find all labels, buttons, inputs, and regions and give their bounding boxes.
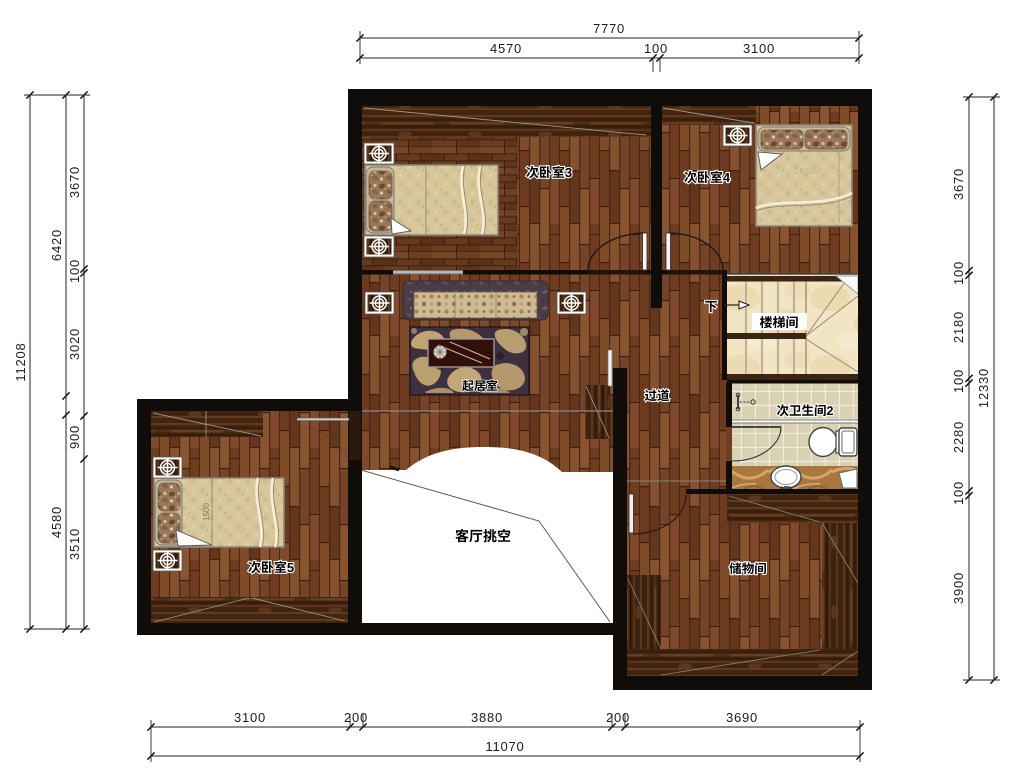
svg-text:3900: 3900 (951, 572, 966, 604)
svg-text:11208: 11208 (13, 342, 28, 381)
svg-text:200: 200 (344, 710, 368, 725)
svg-text:12330: 12330 (976, 368, 991, 408)
svg-text:900: 900 (67, 425, 82, 449)
svg-text:3880: 3880 (471, 710, 503, 725)
svg-text:100: 100 (644, 41, 668, 56)
svg-text:1500: 1500 (794, 166, 817, 176)
svg-text:2180: 2180 (951, 311, 966, 343)
svg-text:4570: 4570 (490, 41, 522, 56)
svg-text:4580: 4580 (49, 506, 64, 538)
svg-text:100: 100 (951, 261, 966, 285)
svg-text:3690: 3690 (726, 710, 758, 725)
svg-text:100: 100 (951, 481, 966, 505)
svg-text:7770: 7770 (593, 21, 625, 36)
svg-text:100: 100 (951, 369, 966, 393)
svg-text:2280: 2280 (951, 421, 966, 453)
svg-text:3100: 3100 (234, 710, 266, 725)
svg-text:3020: 3020 (67, 328, 82, 360)
svg-text:3670: 3670 (951, 168, 966, 200)
svg-text:1500: 1500 (202, 503, 211, 521)
svg-text:6420: 6420 (49, 229, 64, 261)
svg-text:100: 100 (67, 259, 82, 283)
svg-text:200: 200 (606, 710, 630, 725)
svg-text:11070: 11070 (485, 739, 524, 754)
svg-text:3100: 3100 (743, 41, 775, 56)
svg-text:3670: 3670 (67, 166, 82, 198)
svg-text:3510: 3510 (67, 528, 82, 560)
